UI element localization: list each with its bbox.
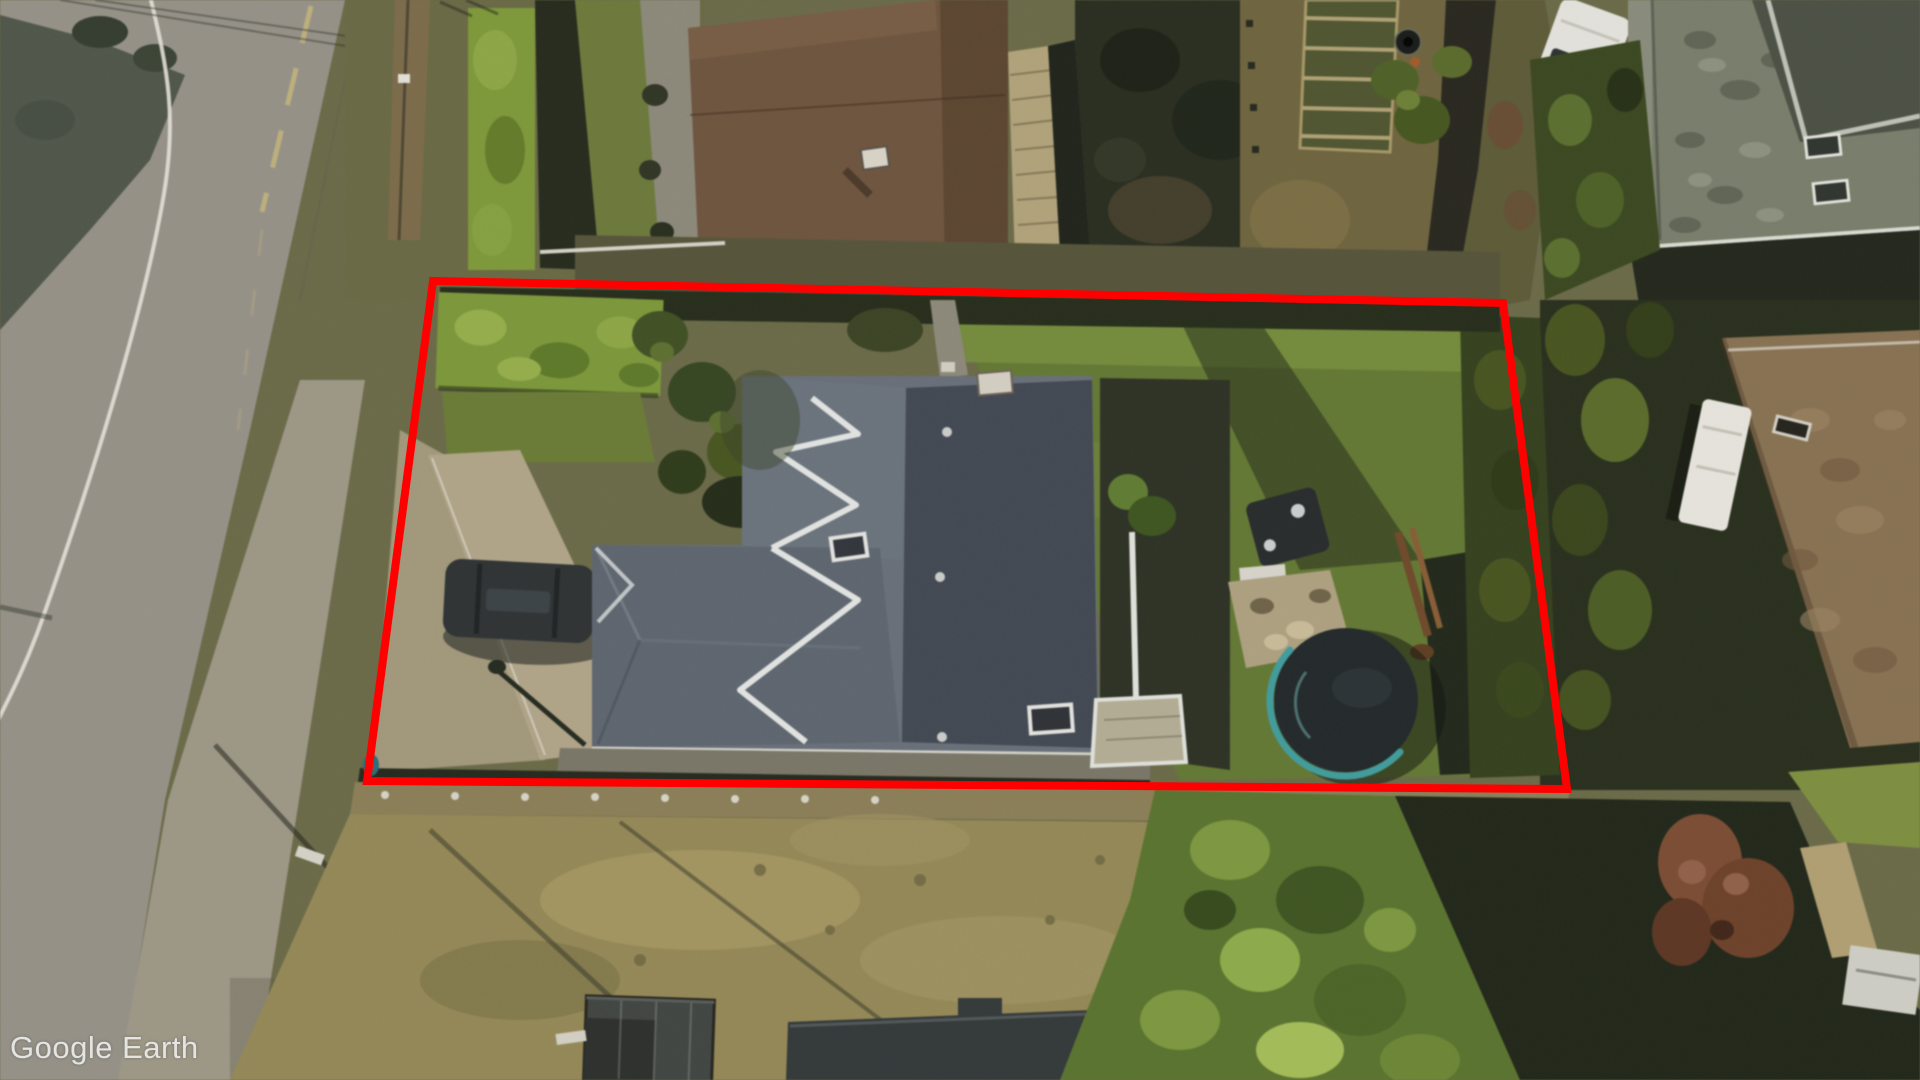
satellite-scene [0,0,1920,1080]
color-cast [0,0,1920,1080]
map-viewport[interactable]: Google Earth [0,0,1920,1080]
google-earth-watermark: Google Earth [10,1030,199,1066]
